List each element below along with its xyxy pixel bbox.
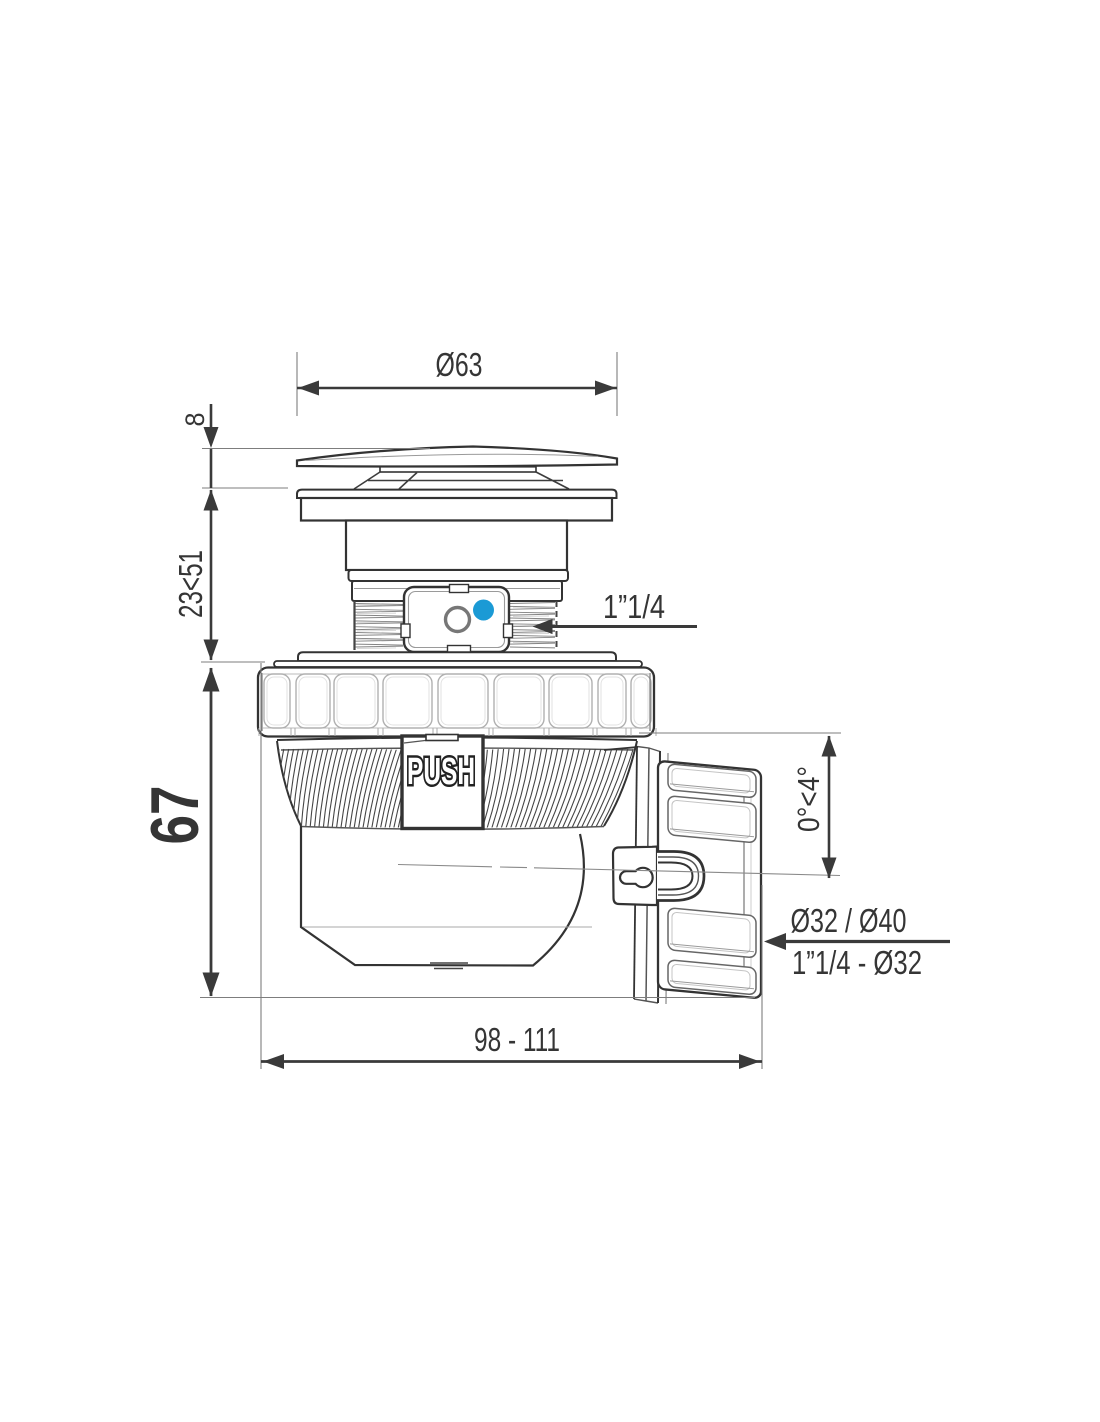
svg-text:Ø63: Ø63	[436, 346, 483, 383]
svg-text:1”1/4: 1”1/4	[603, 588, 665, 625]
svg-text:67: 67	[137, 786, 213, 845]
svg-text:1”1/4 - Ø32: 1”1/4 - Ø32	[792, 944, 922, 981]
svg-text:PUSH: PUSH	[407, 751, 475, 793]
svg-text:98 - 111: 98 - 111	[474, 1021, 560, 1058]
svg-text:23<51: 23<51	[172, 550, 209, 618]
svg-text:0°<4°: 0°<4°	[791, 766, 826, 832]
svg-text:8: 8	[180, 413, 210, 427]
svg-text:Ø32 / Ø40: Ø32 / Ø40	[791, 902, 907, 939]
